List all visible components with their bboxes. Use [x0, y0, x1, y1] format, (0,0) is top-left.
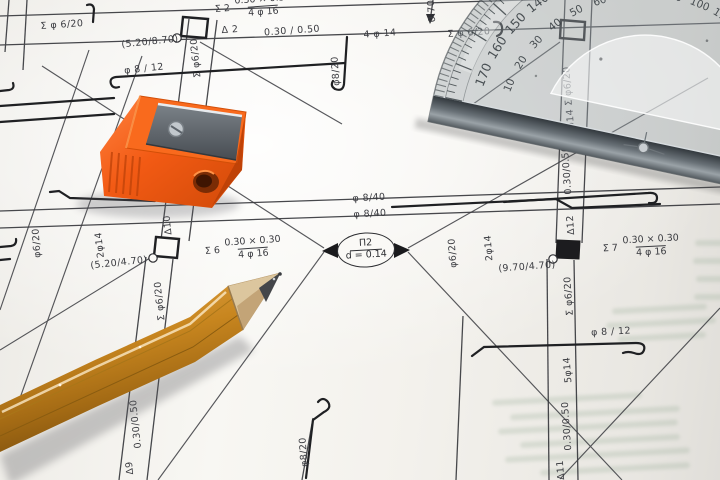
photo-scene: Σ φ 6/20Δ 20.30 / 0.504 φ 14Σ φ 6/20(5.2… [0, 0, 720, 480]
protractor: 1017020160301504014050130601207011080100… [0, 0, 720, 480]
